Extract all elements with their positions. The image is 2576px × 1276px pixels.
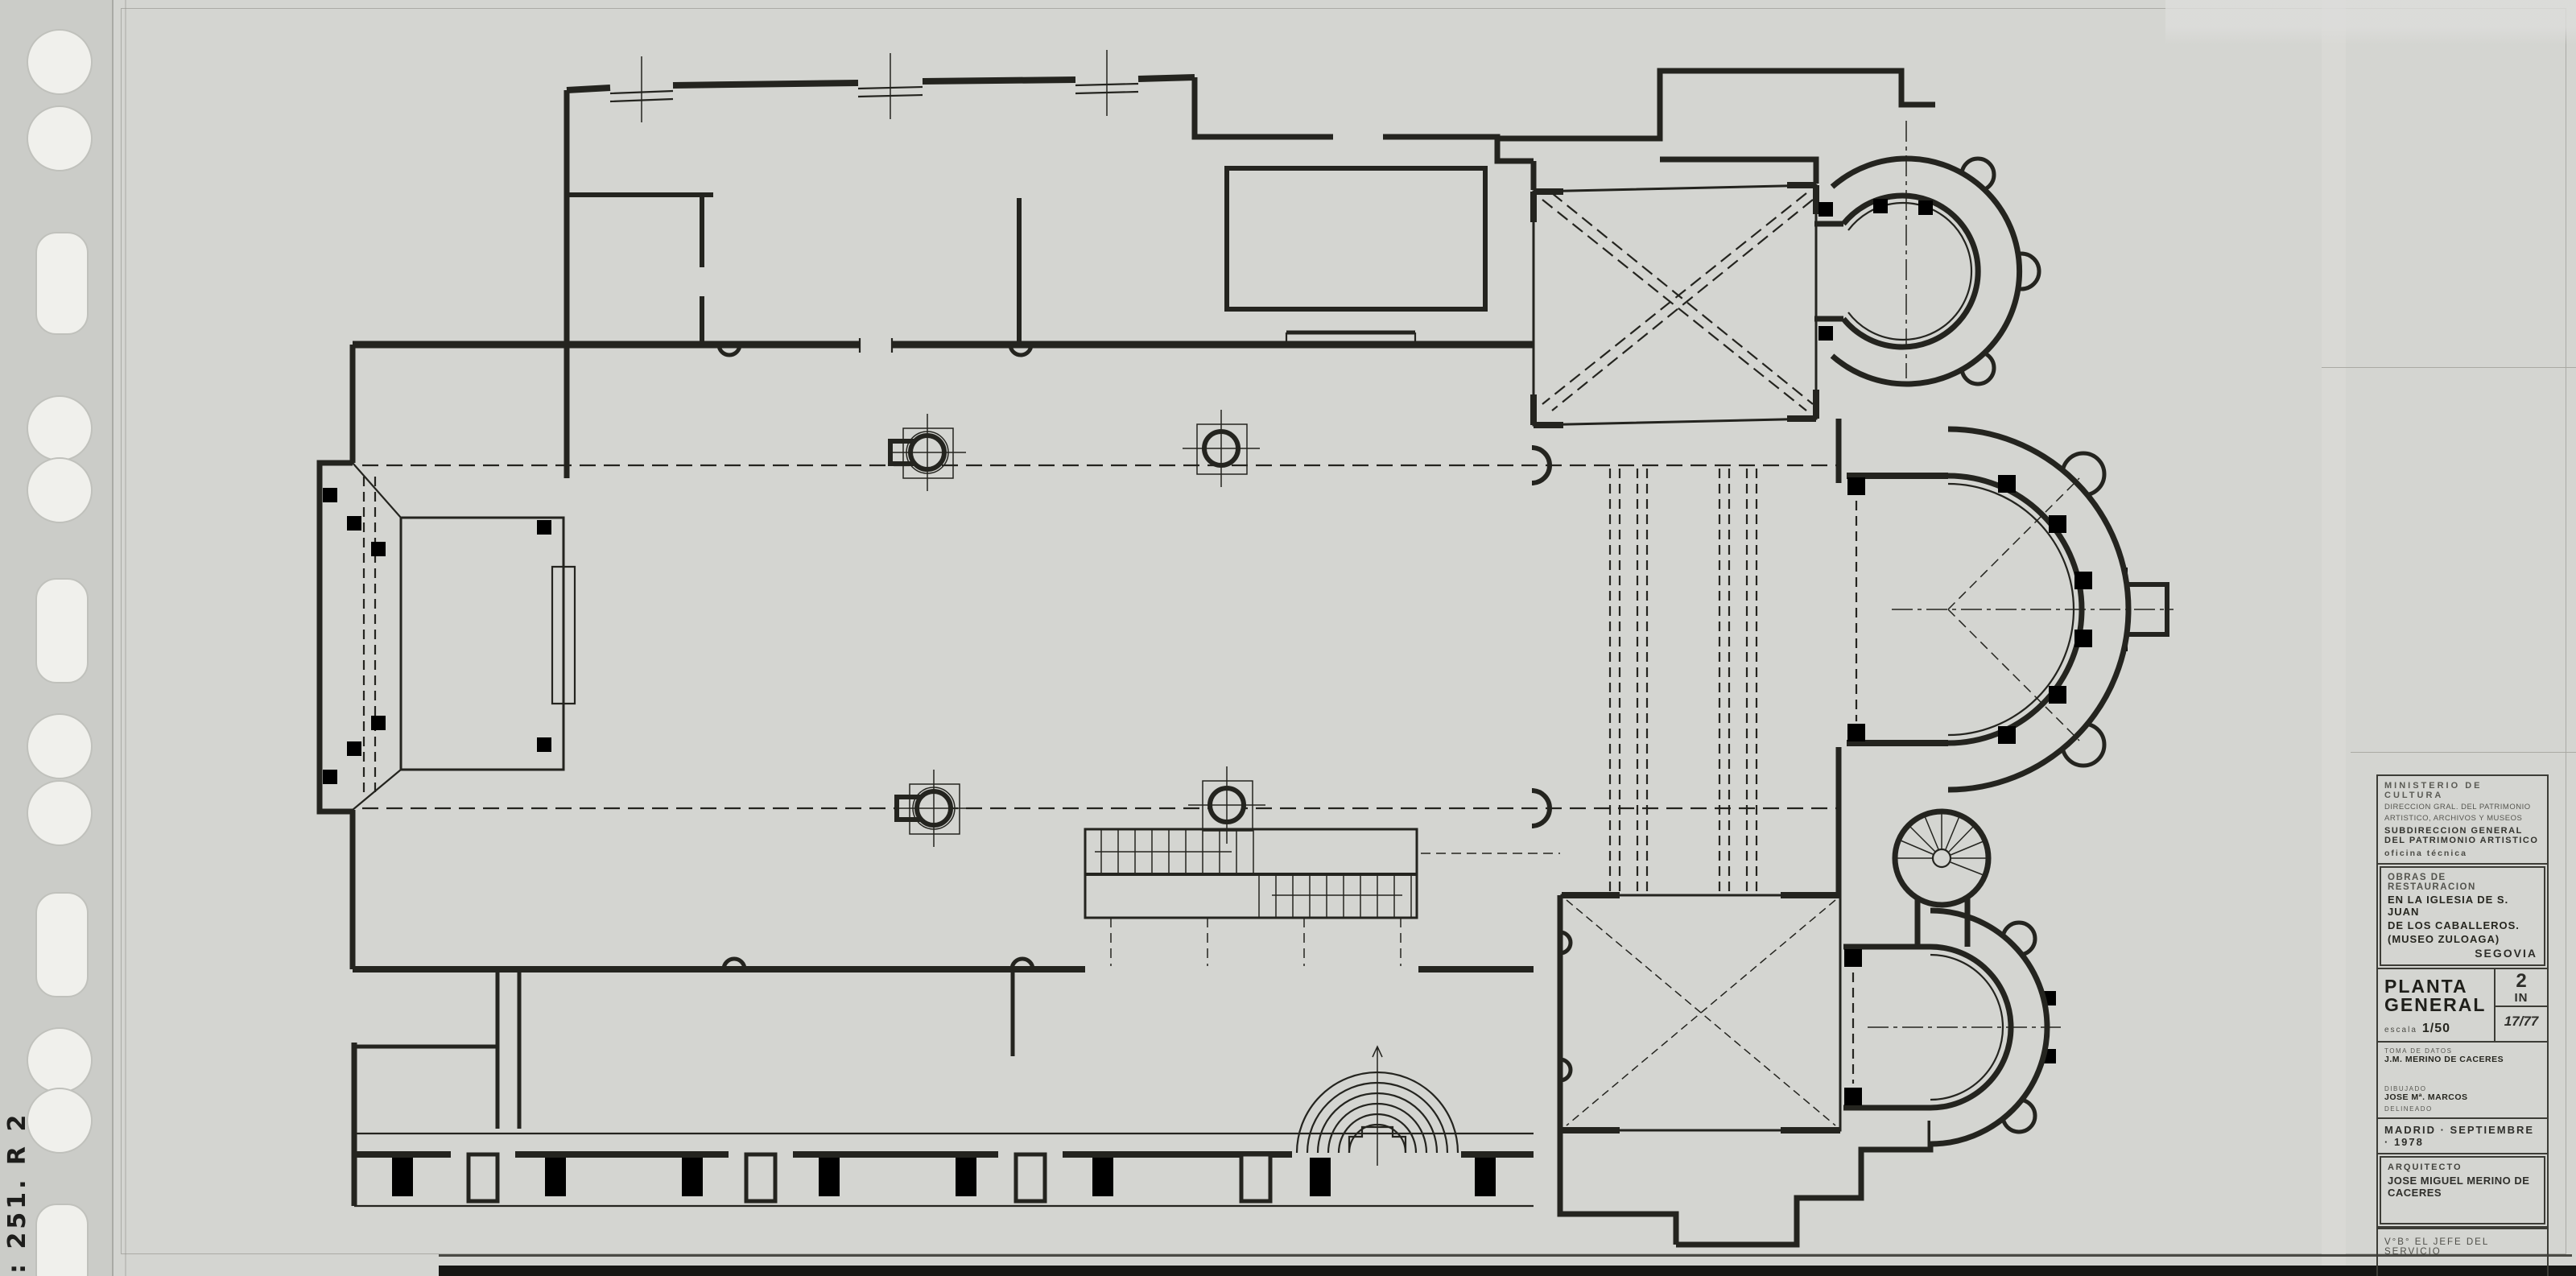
scale-value: 1/50 [2422,1022,2450,1035]
floor-plan-drawing [0,0,2576,1276]
scale-row: escala1/50 [2384,1022,2487,1036]
scanned-drawing-sheet: : 251. R 2 MINISTERIO DE CULTURA DIRECCI… [0,0,2576,1276]
title-block-credits-section: TOMA DE DATOS J.M. MERINO DE CACERES DIB… [2376,1041,2549,1117]
delineated-label: DELINEADO [2384,1105,2541,1113]
drawn-by-label: DIBUJADO [2384,1085,2541,1092]
scale-label: escala [2384,1026,2417,1034]
technical-office-label: oficina técnica [2384,849,2541,858]
drawing-title-line1: PLANTA [2384,977,2487,996]
drawing-title-line2: GENERAL [2384,996,2487,1014]
credits-spacer [2384,1064,2541,1085]
drawn-by-name: JOSE Mª. MARCOS [2384,1092,2541,1102]
title-block: MINISTERIO DE CULTURA DIRECCION GRAL. DE… [2376,774,2549,1256]
ministry-direction-line: DIRECCION GRAL. DEL PATRIMONIO [2384,803,2541,811]
architect-box: ARQUITECTO JOSE MIGUEL MERINO DE CACERES [2376,1153,2549,1228]
works-line1: EN LA IGLESIA DE S. JUAN [2388,894,2537,918]
data-by-name: J.M. MERINO DE CACERES [2384,1055,2541,1064]
subdirection-line1: SUBDIRECCION GENERAL [2384,826,2541,836]
data-by-label: TOMA DE DATOS [2384,1047,2541,1055]
sheet-number-cell: 2 IN [2495,969,2547,1007]
works-title: OBRAS DE RESTAURACION [2388,873,2537,892]
handwritten-archive-note: : 251. R 2 [3,1112,31,1274]
works-city: SEGOVIA [2388,947,2537,960]
architect-name: JOSE MIGUEL MERINO DE CACERES [2388,1175,2537,1199]
approval-box: V°B° EL JEFE DEL SERVICIO [2376,1228,2549,1276]
sheet-number-cells: 2 IN 17/77 [2494,969,2547,1041]
title-block-ministry-section: MINISTERIO DE CULTURA DIRECCION GRAL. DE… [2376,774,2549,863]
ministry-name: MINISTERIO DE CULTURA [2384,781,2541,800]
subdirection-line2: DEL PATRIMONIO ARTISTICO [2384,836,2541,845]
title-block-drawing-title-row: PLANTA GENERAL escala1/50 2 IN 17/77 [2376,969,2549,1041]
plan-linework [320,50,2173,1245]
sheet-number-suffix: IN [2495,991,2547,1005]
sheet-index: 17/77 [2495,1007,2547,1041]
title-block-works-section: OBRAS DE RESTAURACION EN LA IGLESIA DE S… [2376,863,2549,969]
works-line3: (MUSEO ZULOAGA) [2388,933,2537,945]
ministry-direction-line2: ARTISTICO, ARCHIVOS Y MUSEOS [2384,814,2541,823]
architect-label: ARQUITECTO [2388,1162,2537,1172]
sheet-number: 2 [2495,972,2547,991]
works-line2: DE LOS CABALLEROS. [2388,919,2537,931]
drawing-title-cell: PLANTA GENERAL escala1/50 [2378,969,2494,1041]
date-row: MADRID · SEPTIEMBRE · 1978 [2376,1117,2549,1153]
